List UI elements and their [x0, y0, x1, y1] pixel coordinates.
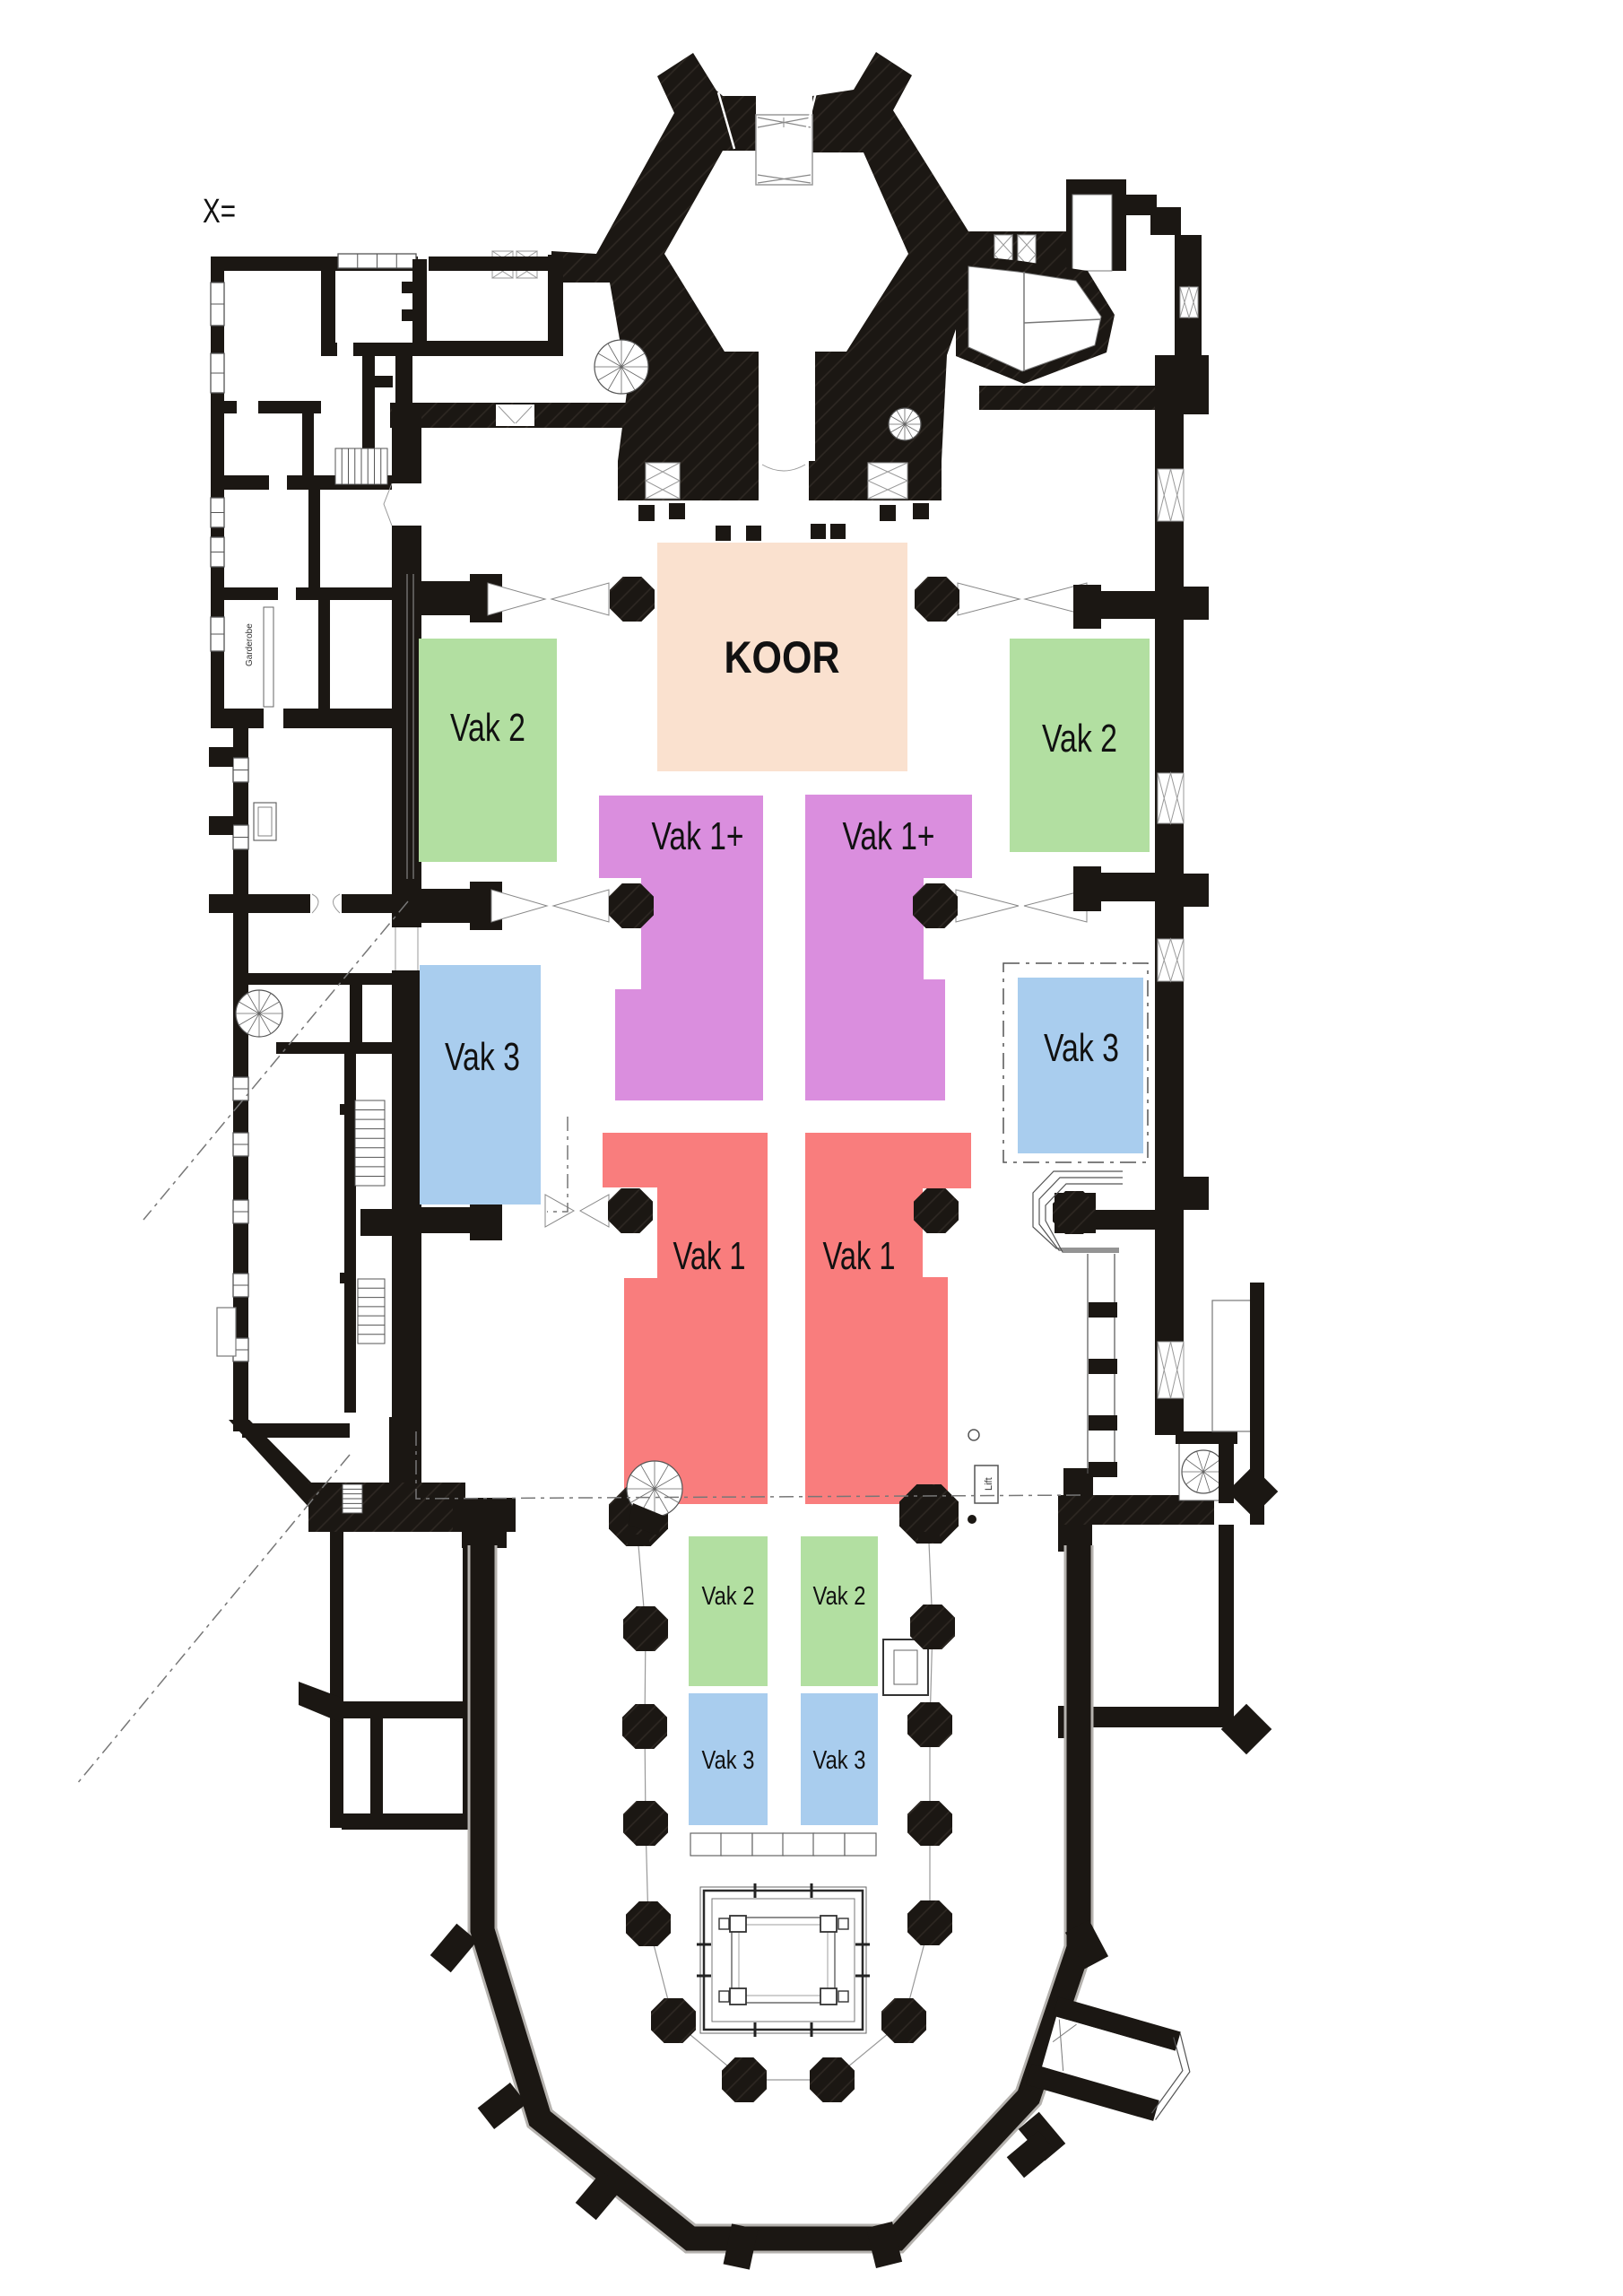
- svg-text:Vak 3: Vak 3: [702, 1746, 755, 1775]
- svg-text:Vak 2: Vak 2: [1042, 717, 1117, 761]
- svg-text:Vak 1: Vak 1: [673, 1234, 746, 1278]
- svg-text:Vak 2: Vak 2: [702, 1582, 755, 1611]
- svg-text:Vak 3: Vak 3: [445, 1035, 520, 1079]
- svg-text:Vak 1: Vak 1: [823, 1234, 896, 1278]
- svg-text:Lift: Lift: [984, 1477, 994, 1491]
- svg-text:X=: X=: [203, 193, 236, 230]
- svg-text:Garderobe: Garderobe: [245, 623, 255, 666]
- svg-text:Vak 1+: Vak 1+: [843, 814, 935, 858]
- svg-text:KOOR: KOOR: [725, 632, 840, 683]
- svg-text:Vak 2: Vak 2: [450, 706, 525, 750]
- svg-text:Vak 2: Vak 2: [813, 1582, 866, 1611]
- svg-text:Vak 3: Vak 3: [813, 1746, 866, 1775]
- svg-text:Vak 1+: Vak 1+: [652, 814, 744, 858]
- svg-text:Vak 3: Vak 3: [1044, 1026, 1119, 1070]
